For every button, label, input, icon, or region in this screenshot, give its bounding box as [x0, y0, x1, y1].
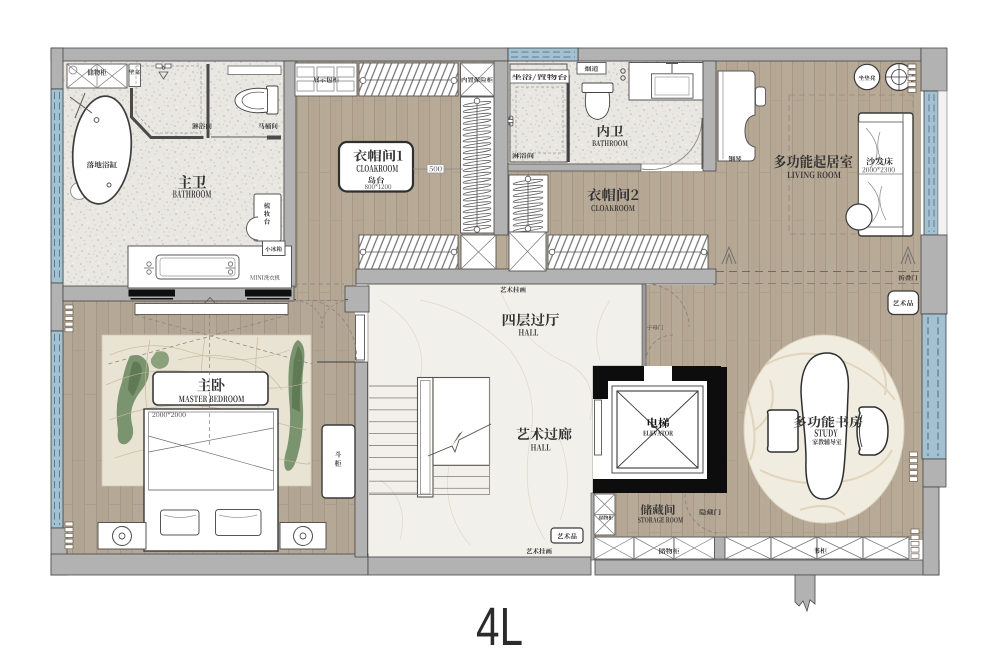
svg-text:4L: 4L: [476, 598, 523, 657]
